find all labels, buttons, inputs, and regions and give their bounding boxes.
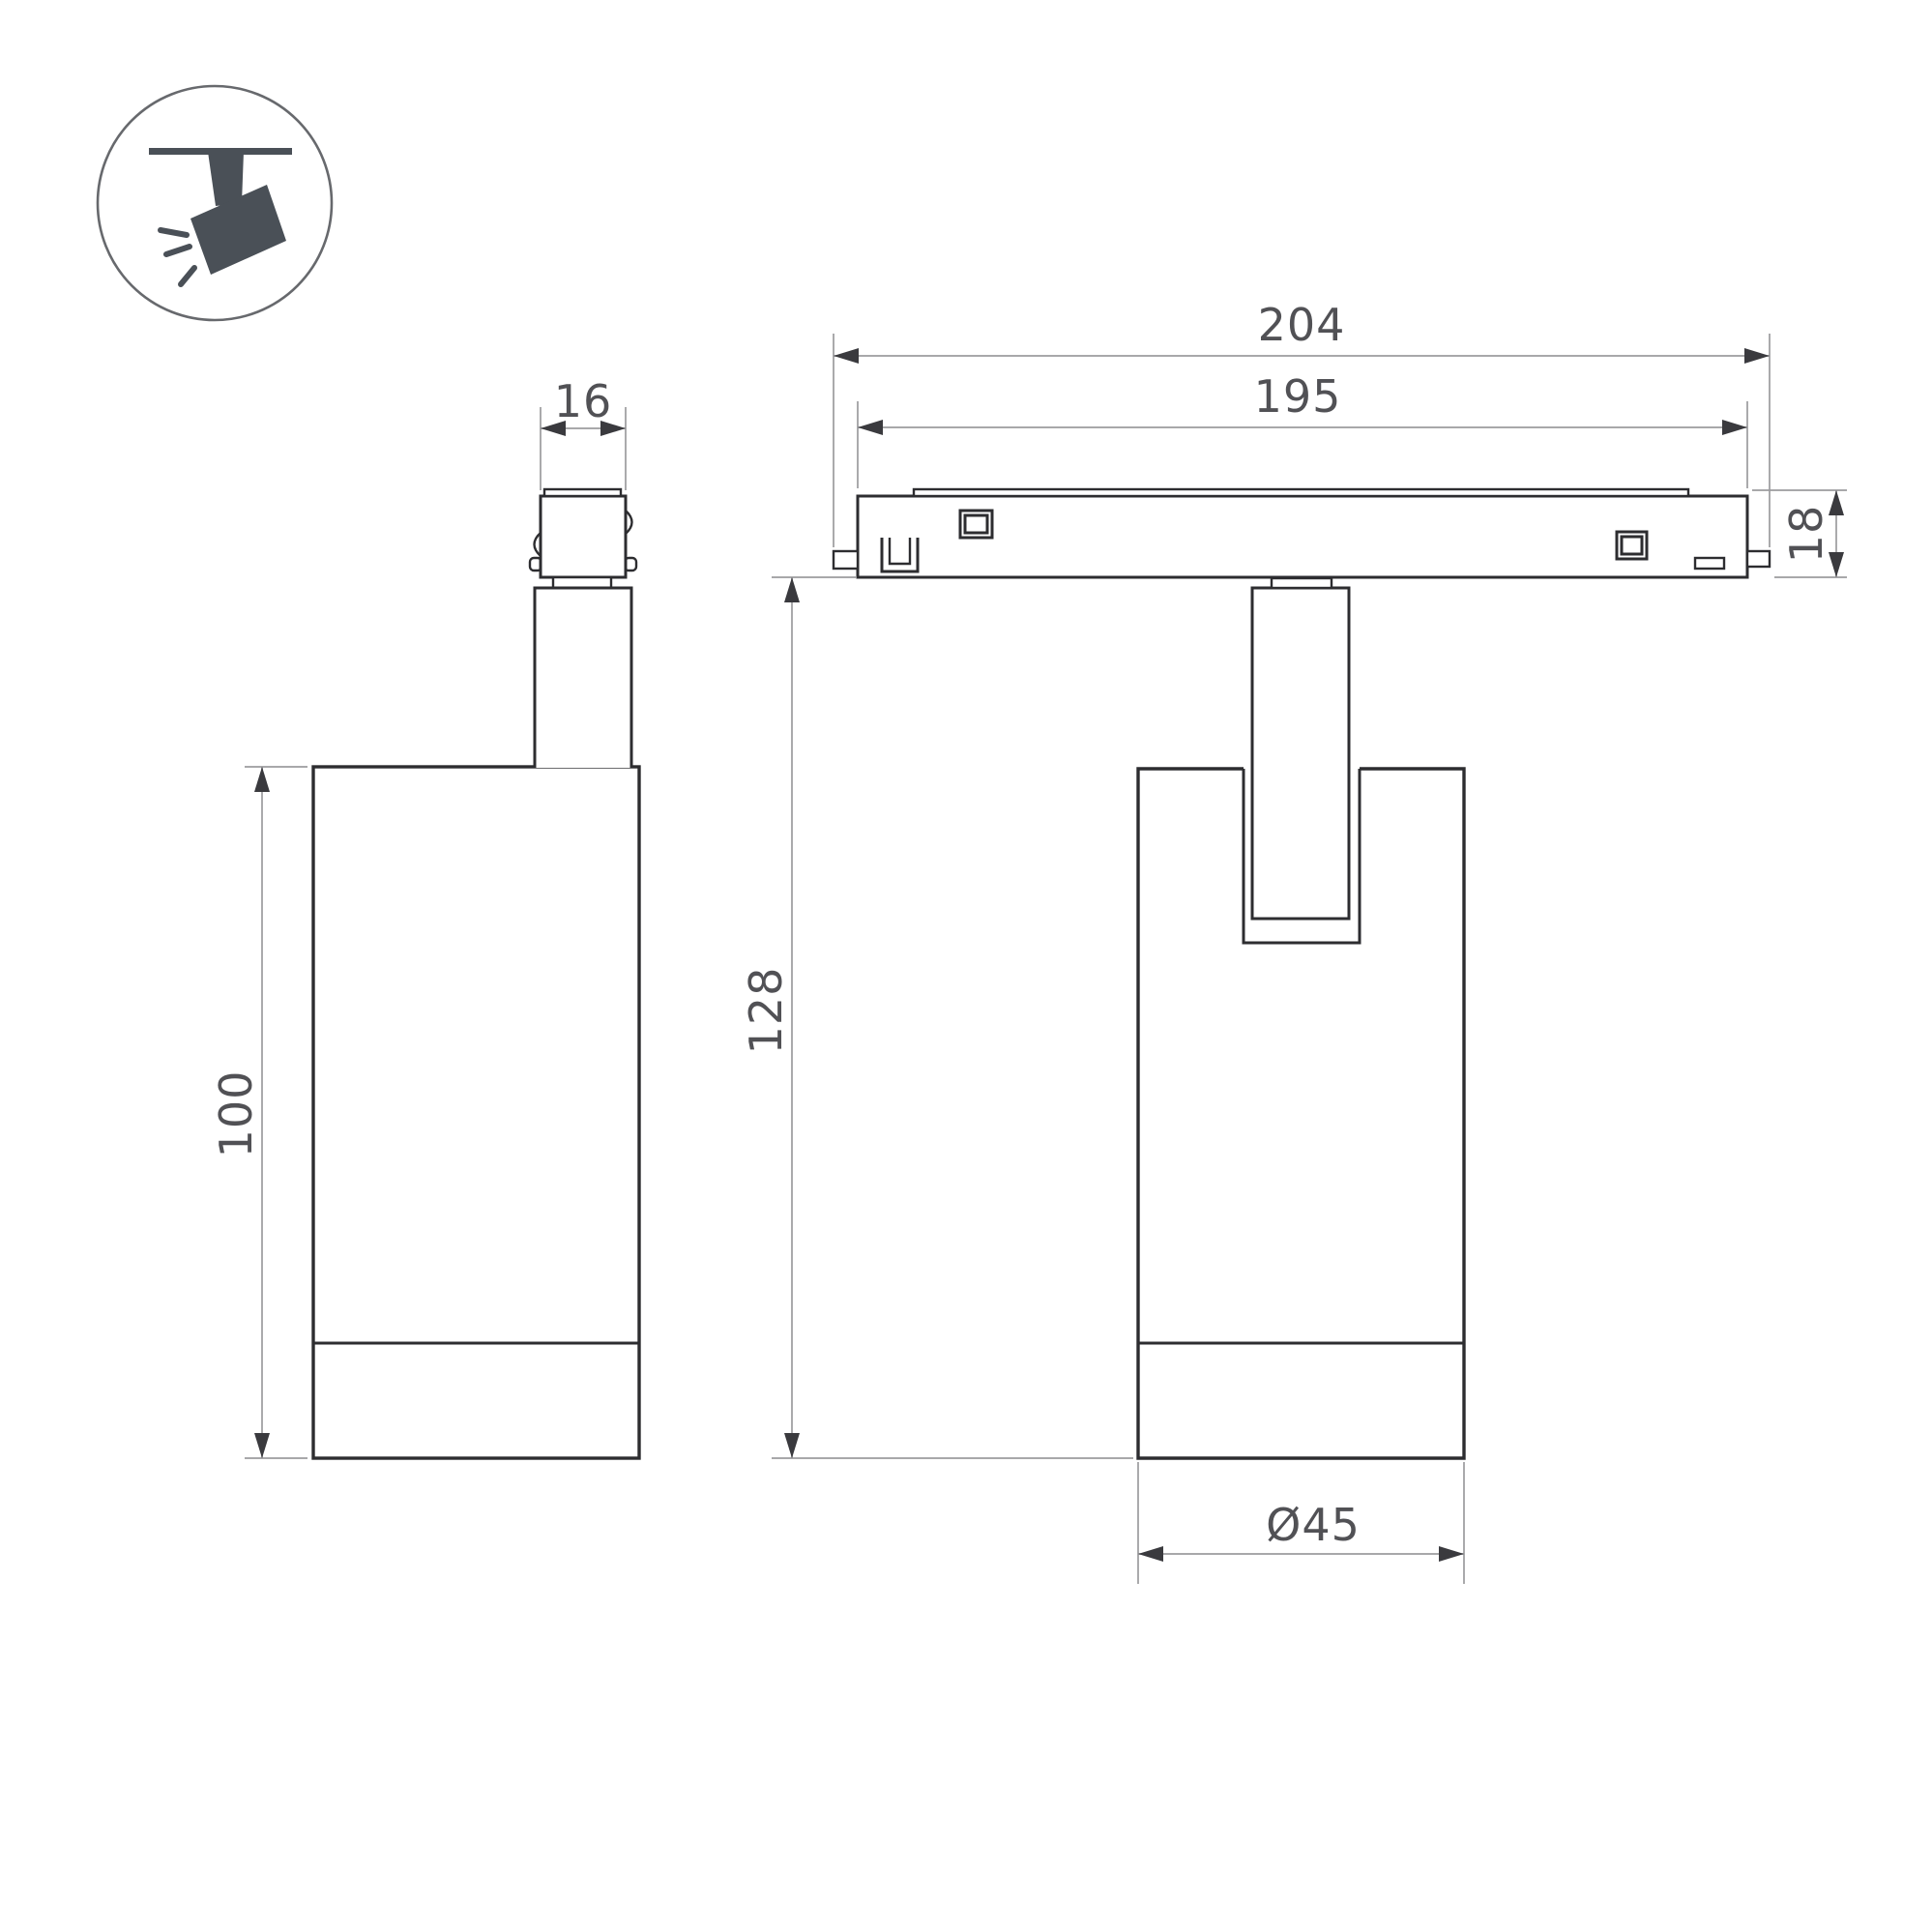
track-rail-strip (914, 489, 1688, 496)
housing-side (313, 767, 639, 1458)
side-view (313, 489, 639, 1458)
stem-front (1252, 588, 1349, 919)
dimension-label-204: 204 (1258, 299, 1346, 351)
dimension-label-diameter: Ø45 (1266, 1499, 1361, 1551)
dimension-label-18: 18 (1780, 505, 1832, 564)
track-spotlight-icon (98, 86, 332, 320)
icon-circle (98, 86, 332, 320)
collar-front (1272, 578, 1332, 588)
arrowhead-left (858, 420, 883, 435)
dimension-adapter-width: 16 (541, 375, 626, 490)
track-adapter-side (541, 496, 626, 577)
dimension-rail-length: 195 (858, 370, 1747, 488)
front-view (834, 489, 1770, 1458)
arrowhead-right (1439, 1546, 1464, 1562)
track-end-tab-right (1747, 551, 1770, 567)
dimension-housing-height: 100 (210, 767, 307, 1458)
arrowhead-right (1722, 420, 1747, 435)
adapter-top-plate-side (544, 489, 621, 496)
stem-side (535, 588, 631, 768)
dimension-label-128: 128 (740, 967, 792, 1055)
arrowhead-right (1744, 348, 1770, 364)
dimension-label-195: 195 (1254, 370, 1342, 423)
dimension-label-100: 100 (210, 1070, 262, 1158)
drawing-canvas: 16 100 204 (0, 0, 1932, 1932)
dimension-label-16: 16 (554, 375, 613, 427)
dimension-overall-height: 128 (740, 577, 1133, 1458)
dimension-housing-diameter: Ø45 (1138, 1462, 1464, 1584)
arrowhead-down (784, 1433, 800, 1458)
arrowhead-up (784, 577, 800, 602)
arrowhead-left (1138, 1546, 1163, 1562)
arrowhead-down (254, 1433, 270, 1458)
arrowhead-up (254, 767, 270, 792)
arrowhead-left (834, 348, 859, 364)
track-end-tab-left (834, 551, 858, 569)
collar-side (553, 577, 611, 588)
technical-drawing: 16 100 204 (0, 0, 1932, 1932)
